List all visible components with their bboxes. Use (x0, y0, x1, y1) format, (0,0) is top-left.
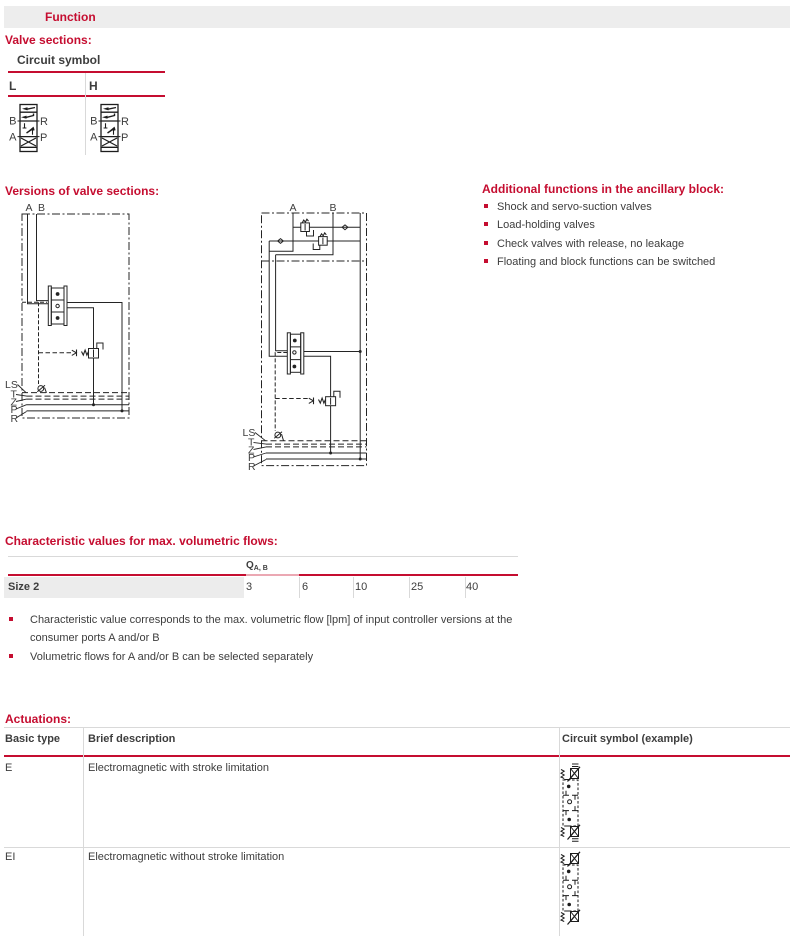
svg-text:A: A (289, 202, 296, 214)
svg-text:R: R (248, 461, 256, 473)
svg-text:P: P (121, 132, 128, 144)
svg-text:B: B (329, 202, 336, 214)
svg-text:A: A (25, 202, 32, 214)
svg-text:R: R (121, 116, 129, 128)
svg-text:B: B (9, 116, 16, 128)
svg-text:R: R (40, 116, 48, 128)
svg-text:B: B (90, 116, 97, 128)
svg-text:R: R (11, 413, 19, 425)
svg-text:P: P (40, 132, 47, 144)
svg-text:A: A (90, 132, 98, 144)
svg-text:B: B (38, 202, 45, 214)
svg-text:A: A (9, 132, 17, 144)
